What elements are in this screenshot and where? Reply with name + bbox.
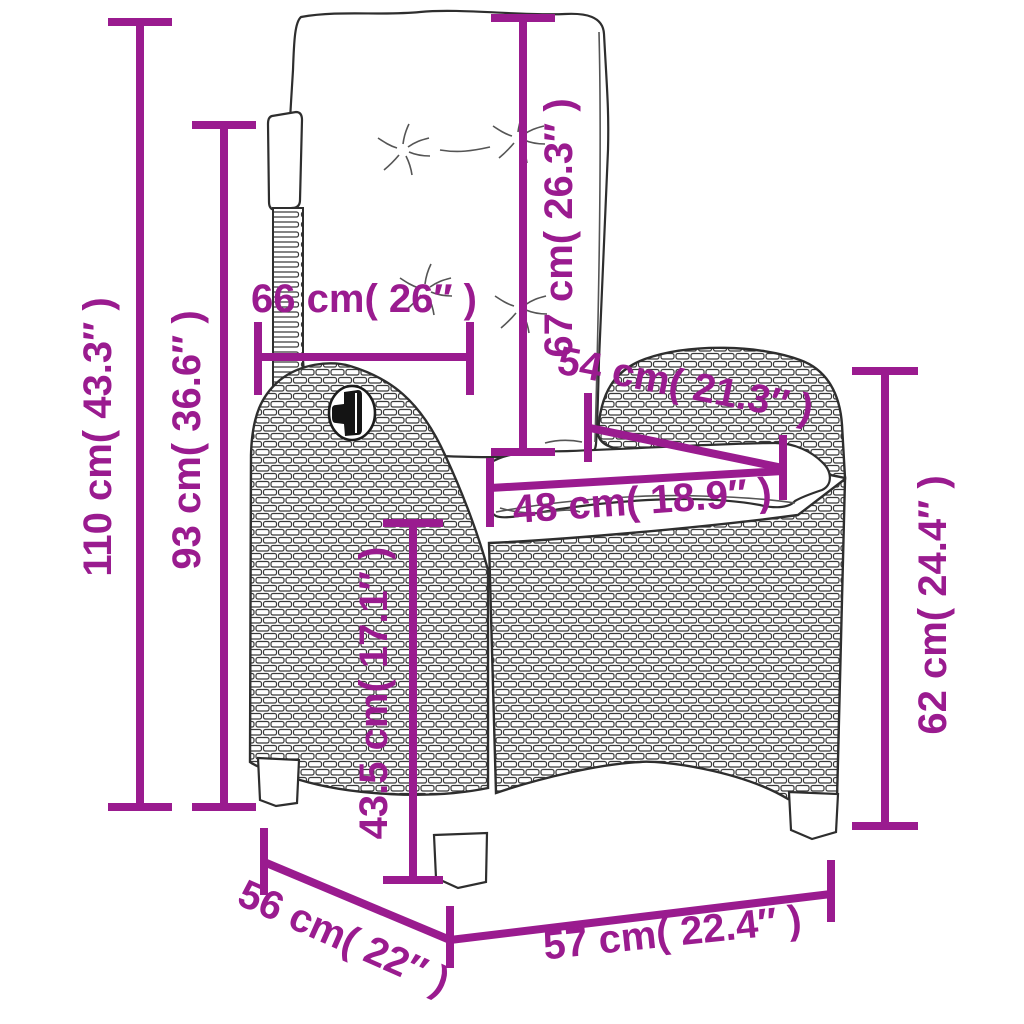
dim-label-base-width: 57 cm( 22.4″ ) — [541, 898, 803, 969]
dim-label-backrest-height: 93 cm( 36.6″ ) — [165, 310, 209, 569]
dim-label-armrest-height: 62 cm( 24.4″ ) — [911, 475, 955, 734]
backrest-frame-sleeve — [268, 112, 302, 210]
dim-backrest-height: 93 cm( 36.6″ ) — [165, 125, 256, 807]
rear-left-leg — [258, 758, 299, 806]
dim-total-height: 110 cm( 43.3″ ) — [76, 22, 172, 807]
dimension-diagram-canvas: 110 cm( 43.3″ ) 93 cm( 36.6″ ) 66 cm( 26… — [0, 0, 1024, 1024]
dim-armrest-height: 62 cm( 24.4″ ) — [852, 371, 955, 826]
dim-label-backrest-width: 66 cm( 26″ ) — [251, 277, 477, 321]
front-right-leg — [789, 792, 838, 839]
dim-base-depth: 56 cm( 22″ ) — [232, 828, 456, 1004]
dim-base-width: 57 cm( 22.4″ ) — [450, 860, 831, 968]
dim-label-backrest-length: 67 cm( 26.3″ ) — [537, 98, 581, 357]
dim-label-seat-height: 43.5 cm( 17.1″ ) — [352, 547, 396, 840]
dimension-diagram: 110 cm( 43.3″ ) 93 cm( 36.6″ ) 66 cm( 26… — [0, 0, 1024, 1024]
dim-label-total-height: 110 cm( 43.3″ ) — [76, 297, 120, 576]
